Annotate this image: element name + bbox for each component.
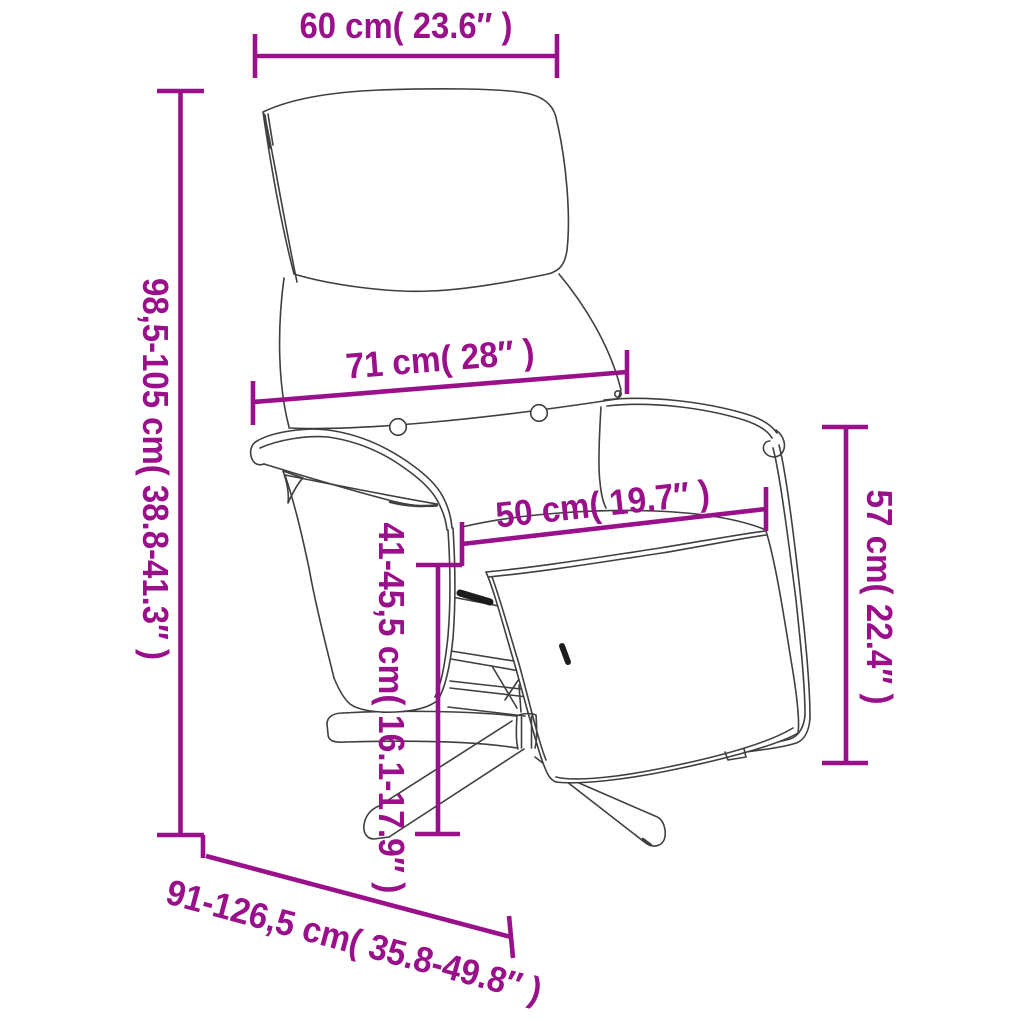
- svg-text:57 cm( 22.4″ ): 57 cm( 22.4″ ): [859, 490, 900, 705]
- svg-text:41-45,5 cm( 16.1-17.9″ ): 41-45,5 cm( 16.1-17.9″ ): [371, 523, 412, 894]
- svg-text:60 cm( 23.6″ ): 60 cm( 23.6″ ): [300, 5, 513, 46]
- svg-text:98,5-105 cm( 38.8-41.3″ ): 98,5-105 cm( 38.8-41.3″ ): [135, 278, 176, 660]
